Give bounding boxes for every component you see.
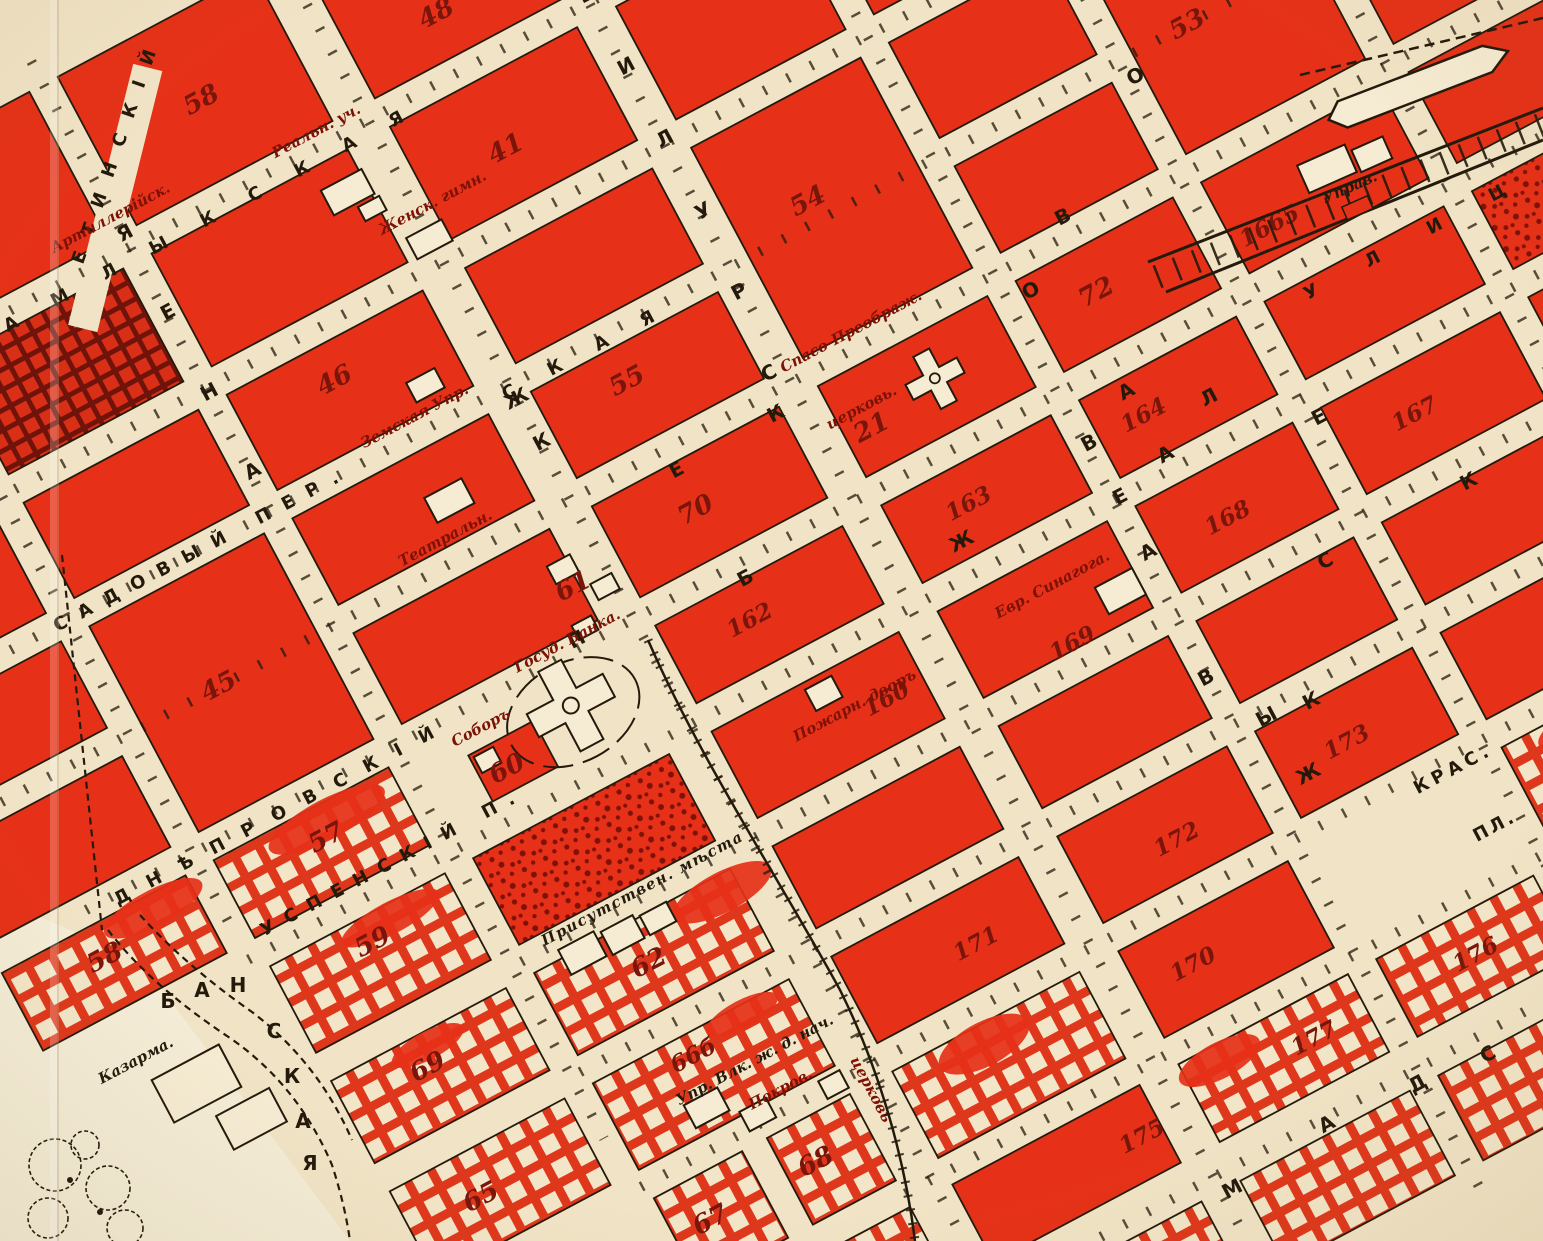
city-map[interactable]: 59 58 48 41 46 54 53 1665 72 21 70 55 45… bbox=[0, 0, 1543, 1241]
map-page: 59 58 48 41 46 54 53 1665 72 21 70 55 45… bbox=[0, 0, 1543, 1241]
paper-vignette bbox=[0, 0, 1543, 1241]
overlays: Управ. Б А Н С К А Я bbox=[0, 0, 1543, 1241]
